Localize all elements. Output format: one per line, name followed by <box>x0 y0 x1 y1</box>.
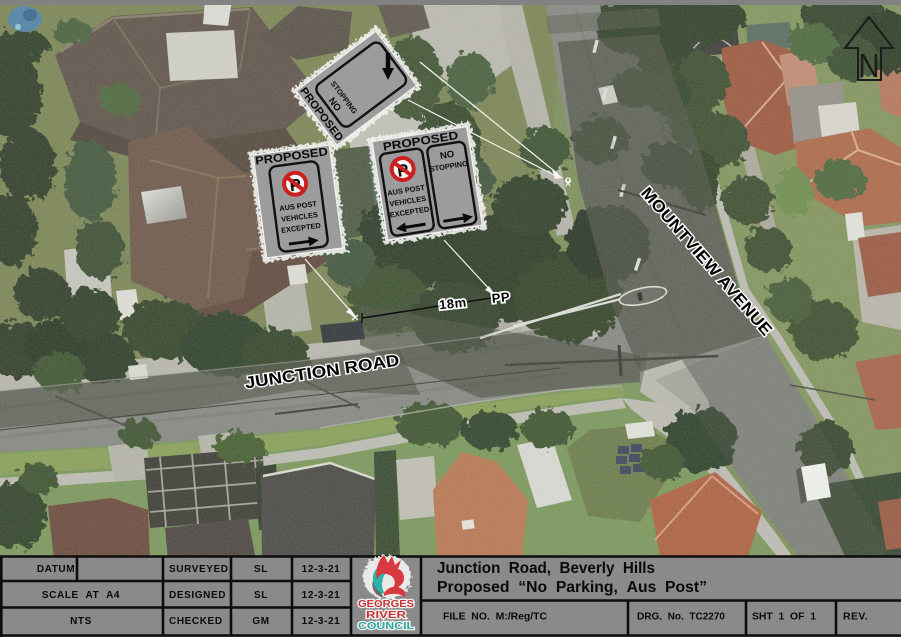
svg-text:Proposed “No Parking, Aus: Proposed “No Parking, Aus Post” <box>437 579 707 596</box>
svg-text:12-3-21: 12-3-21 <box>302 590 341 601</box>
svg-text:12-3-21: 12-3-21 <box>302 616 341 627</box>
svg-text:SCALE AT A4: SCALE AT A4 <box>42 590 120 601</box>
svg-text:NTS: NTS <box>70 616 92 627</box>
svg-text:DESIGNED: DESIGNED <box>169 590 226 601</box>
svg-text:COUNCIL: COUNCIL <box>358 621 414 632</box>
svg-text:N: N <box>859 47 880 84</box>
svg-text:SURVEYED: SURVEYED <box>169 564 229 575</box>
svg-text:NO: NO <box>439 149 455 162</box>
svg-text:DATUM: DATUM <box>37 564 75 575</box>
svg-text:REV.: REV. <box>843 611 868 623</box>
svg-text:RIVER: RIVER <box>366 609 407 621</box>
svg-text:SL: SL <box>254 590 268 601</box>
svg-text:SHT 1 OF 1: SHT 1 OF 1 <box>752 611 816 623</box>
svg-text:GM: GM <box>252 616 269 627</box>
svg-text:DRG. No. TC2270: DRG. No. TC2270 <box>637 611 725 623</box>
svg-text:Junction Road, Beverly Hill: Junction Road, Beverly Hills <box>437 560 655 577</box>
svg-text:PP: PP <box>491 289 511 306</box>
svg-text:18m: 18m <box>438 295 467 313</box>
svg-text:FILE NO. M:/Reg/TC: FILE NO. M:/Reg/TC <box>443 611 547 623</box>
svg-text:SL: SL <box>254 564 268 575</box>
svg-text:CHECKED: CHECKED <box>169 616 223 627</box>
svg-text:12-3-21: 12-3-21 <box>302 564 341 575</box>
